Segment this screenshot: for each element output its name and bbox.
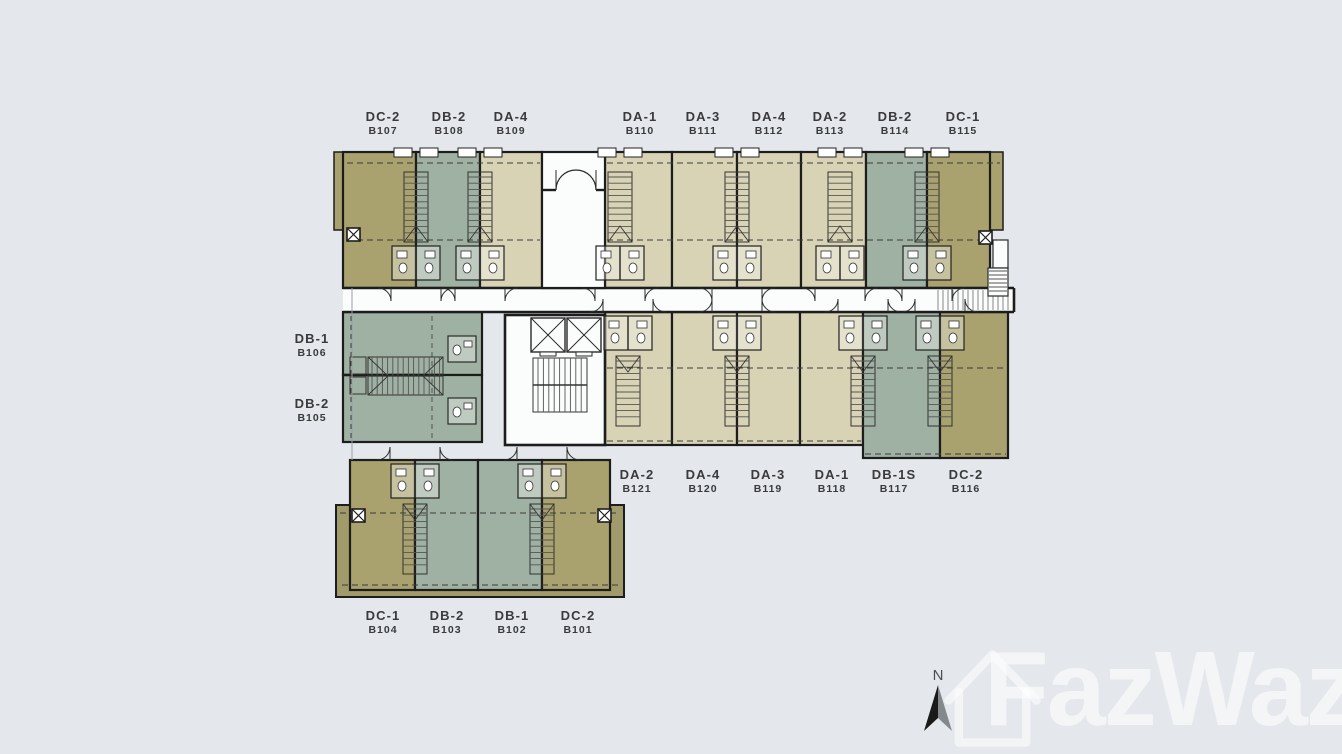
unit-model: DC-2 (561, 609, 596, 624)
unit-number: B107 (366, 126, 401, 138)
unit-number: B119 (751, 484, 786, 496)
unit-model: DA-2 (620, 468, 655, 483)
unit-number: B116 (949, 484, 984, 496)
unit-model: DC-1 (366, 609, 401, 624)
unit-label-B121: DA-2B121 (620, 468, 655, 495)
unit-model: DA-4 (686, 468, 721, 483)
unit-number: B104 (366, 625, 401, 637)
unit-label-B112: DA-4B112 (752, 110, 787, 137)
unit-number: B103 (430, 625, 465, 637)
unit-model: DB-2 (430, 609, 465, 624)
unit-number: B112 (752, 126, 787, 138)
unit-model: DC-2 (949, 468, 984, 483)
unit-label-B117: DB-1SB117 (872, 468, 917, 495)
unit-number: B121 (620, 484, 655, 496)
unit-number: B111 (686, 126, 721, 138)
unit-model: DB-2 (295, 397, 330, 412)
unit-model: DA-3 (751, 468, 786, 483)
unit-label-B111: DA-3B111 (686, 110, 721, 137)
unit-label-B118: DA-1B118 (815, 468, 850, 495)
unit-label-B116: DC-2B116 (949, 468, 984, 495)
unit-number: B102 (495, 625, 530, 637)
unit-label-B103: DB-2B103 (430, 609, 465, 636)
unit-number: B118 (815, 484, 850, 496)
unit-model: DA-4 (494, 110, 529, 125)
unit-label-B115: DC-1B115 (946, 110, 981, 137)
unit-labels-layer: DC-2B107DB-2B108DA-4B109DA-1B110DA-3B111… (0, 0, 1342, 754)
unit-model: DA-2 (813, 110, 848, 125)
unit-label-B108: DB-2B108 (432, 110, 467, 137)
unit-label-B120: DA-4B120 (686, 468, 721, 495)
unit-label-B104: DC-1B104 (366, 609, 401, 636)
unit-label-B101: DC-2B101 (561, 609, 596, 636)
unit-model: DB-1S (872, 468, 917, 483)
floor-plan-page: FazWaz DC-2B107DB-2B108DA-4B109DA-1B110D… (0, 0, 1342, 754)
unit-model: DA-4 (752, 110, 787, 125)
unit-model: DA-1 (623, 110, 658, 125)
unit-number: B114 (878, 126, 913, 138)
unit-label-B114: DB-2B114 (878, 110, 913, 137)
unit-number: B110 (623, 126, 658, 138)
unit-number: B108 (432, 126, 467, 138)
unit-model: DA-1 (815, 468, 850, 483)
unit-number: B109 (494, 126, 529, 138)
unit-number: B120 (686, 484, 721, 496)
unit-label-B106: DB-1B106 (295, 332, 330, 359)
unit-number: B101 (561, 625, 596, 637)
unit-model: DC-2 (366, 110, 401, 125)
unit-model: DB-2 (432, 110, 467, 125)
unit-model: DC-1 (946, 110, 981, 125)
unit-label-B102: DB-1B102 (495, 609, 530, 636)
unit-model: DB-1 (295, 332, 330, 347)
unit-label-B107: DC-2B107 (366, 110, 401, 137)
unit-model: DA-3 (686, 110, 721, 125)
unit-label-B109: DA-4B109 (494, 110, 529, 137)
unit-number: B115 (946, 126, 981, 138)
unit-number: B106 (295, 348, 330, 360)
unit-model: DB-2 (878, 110, 913, 125)
unit-number: B117 (872, 484, 917, 496)
unit-label-B105: DB-2B105 (295, 397, 330, 424)
unit-label-B119: DA-3B119 (751, 468, 786, 495)
unit-model: DB-1 (495, 609, 530, 624)
unit-number: B113 (813, 126, 848, 138)
unit-number: B105 (295, 413, 330, 425)
unit-label-B113: DA-2B113 (813, 110, 848, 137)
unit-label-B110: DA-1B110 (623, 110, 658, 137)
